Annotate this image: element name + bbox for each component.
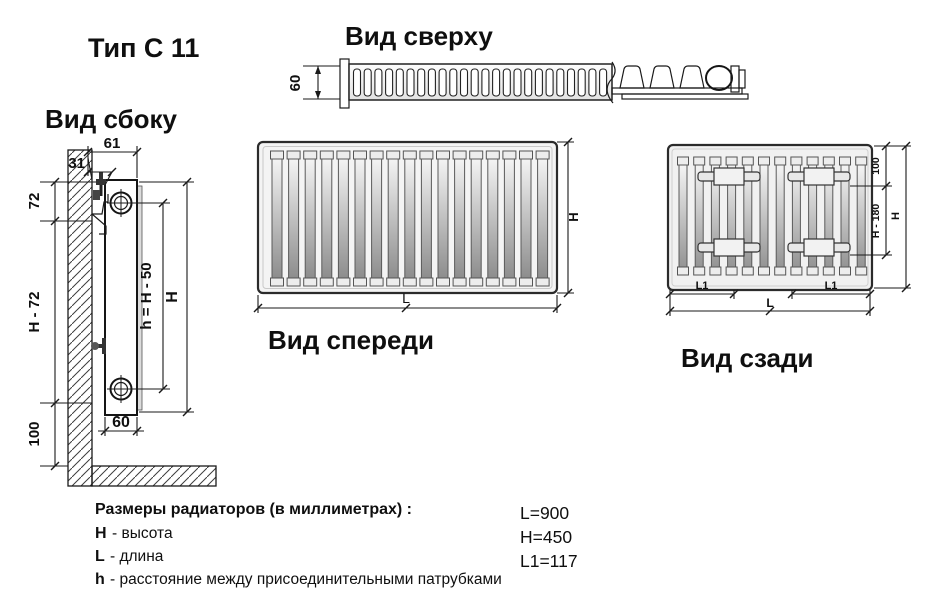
convector-slot <box>600 69 607 96</box>
channel-cap <box>742 157 753 165</box>
channel-cap <box>337 151 350 159</box>
convector-slot <box>439 69 446 96</box>
convector-slot <box>546 69 553 96</box>
channel-cap <box>791 267 802 275</box>
rear-L1-left-label: L1 <box>696 280 709 292</box>
channel-shaft <box>372 159 382 278</box>
channel-shaft <box>438 159 448 278</box>
channel-shaft <box>421 159 431 278</box>
connection-stub <box>739 70 745 88</box>
arrow-up-icon <box>315 66 321 74</box>
channel-cap <box>354 151 367 159</box>
channel-cap <box>678 157 689 165</box>
convector-slot <box>471 69 478 96</box>
channel-cap <box>470 278 483 286</box>
pipe-boss <box>706 66 732 90</box>
channel-shaft <box>322 159 332 278</box>
front-channels <box>271 151 550 286</box>
channel-cap <box>775 157 786 165</box>
channel-cap <box>678 267 689 275</box>
channel-shaft <box>388 159 398 278</box>
channel-cap <box>503 151 516 159</box>
channel-cap <box>437 151 450 159</box>
convector-slot <box>407 69 414 96</box>
convector-slot <box>535 69 542 96</box>
convector-slot <box>578 69 585 96</box>
channel-cap <box>807 267 818 275</box>
side-view-title: Вид сбоку <box>45 104 178 134</box>
channel-cap <box>387 151 400 159</box>
channel-shaft <box>355 159 365 278</box>
channel-cap <box>486 278 499 286</box>
channel-cap <box>403 151 416 159</box>
legend-symbol-L: L <box>95 548 105 565</box>
thickness-dimension: 60 <box>98 414 144 436</box>
channel-cap <box>840 267 851 275</box>
channel-shaft <box>455 159 465 278</box>
convector-slot <box>396 69 403 96</box>
channel-cap <box>759 267 770 275</box>
convector-slot <box>450 69 457 96</box>
channel-shaft <box>504 159 514 278</box>
dim-pipe-spacing-label: h = H - 50 <box>138 262 155 329</box>
end-plate <box>340 59 349 108</box>
channel-shaft <box>521 159 531 278</box>
channel-cap <box>370 278 383 286</box>
channel-shaft <box>857 165 865 275</box>
channel-cap <box>823 267 834 275</box>
channel-shaft <box>305 159 315 278</box>
dim-31-label: 31 <box>68 155 85 172</box>
channel-cap <box>726 157 737 165</box>
channel-cap <box>420 278 433 286</box>
channel-shaft <box>471 159 481 278</box>
rear-view: 100 H - 180 H L1 L1 L Вид сзади <box>668 145 911 373</box>
channel-cap <box>710 157 721 165</box>
channel-cap <box>791 157 802 165</box>
channel-cap <box>520 151 533 159</box>
convector-slot <box>364 69 371 96</box>
page-title: Тип С 11 <box>88 33 199 63</box>
front-view-title: Вид спереди <box>268 325 434 355</box>
top-depth-dimension: 60 <box>287 66 340 99</box>
convector-slot <box>375 69 382 96</box>
channel-shaft <box>776 165 784 275</box>
channel-shaft <box>760 165 768 275</box>
channel-cap <box>775 267 786 275</box>
rear-view-title: Вид сзади <box>681 343 813 373</box>
convector-slot <box>493 69 500 96</box>
channel-cap <box>710 267 721 275</box>
dim-100-label: 100 <box>26 421 43 446</box>
channel-cap <box>387 278 400 286</box>
convector-slot <box>525 69 532 96</box>
fin-profile <box>620 66 644 88</box>
channel-shaft <box>538 159 548 278</box>
channel-cap <box>453 278 466 286</box>
diagram-canvas: Тип С 11 Вид сверху 60 <box>0 0 930 611</box>
arrow-down-icon <box>315 91 321 99</box>
convector-slot <box>428 69 435 96</box>
convector-slot <box>461 69 468 96</box>
rear-H-label: H <box>890 212 902 220</box>
channel-cap <box>437 278 450 286</box>
radiator-dimension-diagram: Тип С 11 Вид сверху 60 <box>0 0 930 611</box>
channel-cap <box>759 157 770 165</box>
channel-cap <box>742 267 753 275</box>
channel-cap <box>320 278 333 286</box>
channel-cap <box>726 267 737 275</box>
channel-shaft <box>289 159 299 278</box>
convector-slot <box>557 69 564 96</box>
values-panel: L=900 H=450 L1=117 <box>520 503 578 571</box>
convector-slot <box>514 69 521 96</box>
channel-cap <box>403 278 416 286</box>
pipe-connection-bottom <box>107 375 135 403</box>
convector-slot <box>354 69 361 96</box>
fin-profile <box>680 66 704 88</box>
channel-cap <box>840 157 851 165</box>
front-view: H L Вид спереди <box>258 142 581 355</box>
channel-cap <box>536 278 549 286</box>
dim-H-label: H <box>164 291 181 303</box>
rear-H180-label: H - 180 <box>870 204 882 239</box>
dim-72-label: 72 <box>26 193 43 210</box>
dim-61-label: 61 <box>104 135 121 152</box>
dim-60-label: 60 <box>112 414 130 431</box>
channel-shaft <box>405 159 415 278</box>
channel-cap <box>503 278 516 286</box>
top-view-title: Вид сверху <box>345 21 493 51</box>
channel-cap <box>823 157 834 165</box>
channel-cap <box>304 278 317 286</box>
top-view: Вид сверху 60 <box>287 21 748 108</box>
legend-symbol-h: h <box>95 571 105 588</box>
channel-cap <box>486 151 499 159</box>
legend-heading: Размеры радиаторов (в миллиметрах) : <box>95 501 412 518</box>
floor-section <box>92 466 216 486</box>
convector-slot <box>482 69 489 96</box>
channel-shaft <box>679 165 687 275</box>
channel-shaft <box>338 159 348 278</box>
legend: Размеры радиаторов (в миллиметрах) : H -… <box>95 501 502 588</box>
channel-cap <box>287 278 300 286</box>
channel-cap <box>271 278 284 286</box>
channel-cap <box>856 267 867 275</box>
wall-bracket-lower <box>91 338 106 354</box>
channel-cap <box>271 151 284 159</box>
channel-cap <box>420 151 433 159</box>
channel-cap <box>694 267 705 275</box>
value-H: H=450 <box>520 527 572 547</box>
channel-shaft <box>272 159 282 278</box>
top-depth-label: 60 <box>287 75 304 92</box>
channel-cap <box>694 157 705 165</box>
rear-100-label: 100 <box>870 157 882 175</box>
value-L1: L1=117 <box>520 551 578 571</box>
channel-cap <box>856 157 867 165</box>
channel-cap <box>520 278 533 286</box>
rear-L1-right-label: L1 <box>825 280 838 292</box>
channel-cap <box>287 151 300 159</box>
channel-cap <box>354 278 367 286</box>
channel-cap <box>536 151 549 159</box>
front-L-label: L <box>402 290 410 306</box>
convector-slot <box>418 69 425 96</box>
base-plate-lower <box>622 94 748 99</box>
channel-cap <box>337 278 350 286</box>
legend-text-H: - высота <box>112 525 173 542</box>
fin-profile <box>650 66 674 88</box>
channel-cap <box>453 151 466 159</box>
convector-slot <box>568 69 575 96</box>
channel-cap <box>304 151 317 159</box>
channel-cap <box>470 151 483 159</box>
wall-section <box>68 150 92 486</box>
legend-symbol-H: H <box>95 525 107 542</box>
side-view: Вид сбоку <box>26 104 216 486</box>
channel-cap <box>807 157 818 165</box>
pipe-connection-top <box>107 189 135 217</box>
dim-h72-label: H - 72 <box>26 292 43 333</box>
channel-cap <box>370 151 383 159</box>
front-H-label: H <box>566 212 581 221</box>
convector-slot <box>503 69 510 96</box>
value-L: L=900 <box>520 503 569 523</box>
convector-slot <box>589 69 596 96</box>
top-radiator-strip <box>340 59 748 108</box>
legend-text-h: - расстояние между присоединительными па… <box>110 571 502 588</box>
legend-text-L: - длина <box>110 548 164 565</box>
channel-shaft <box>488 159 498 278</box>
channel-cap <box>320 151 333 159</box>
convector-slot <box>386 69 393 96</box>
